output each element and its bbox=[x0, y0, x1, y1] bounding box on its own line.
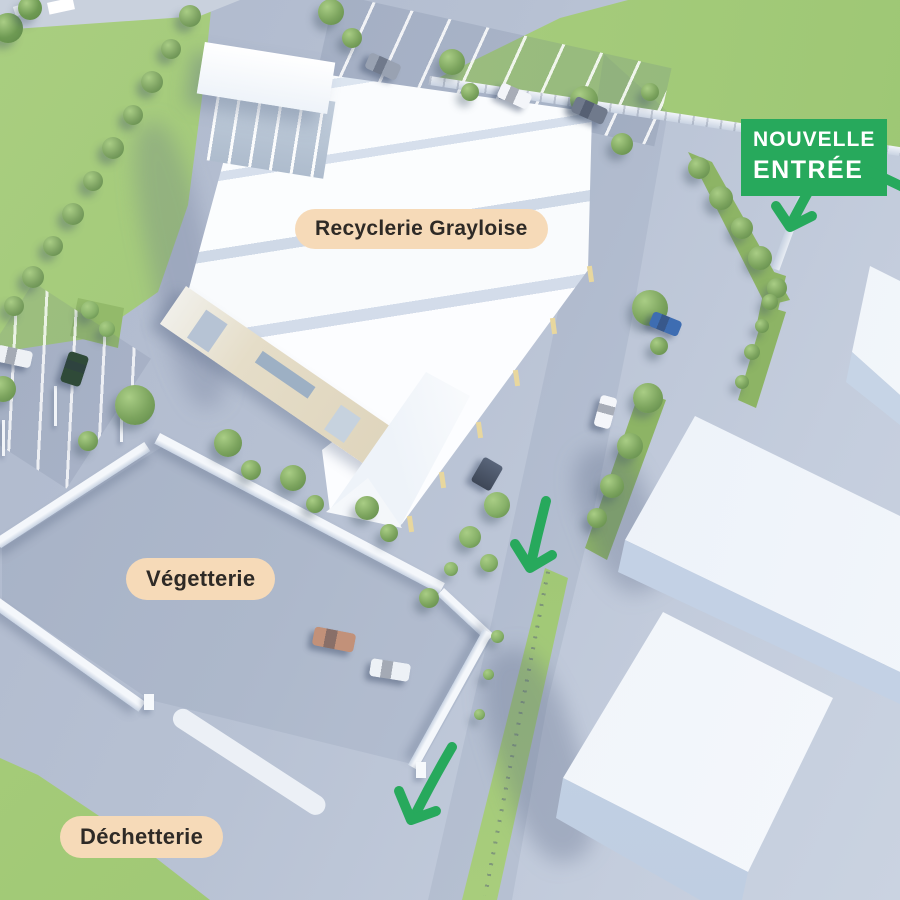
tree bbox=[755, 319, 769, 333]
tree bbox=[318, 0, 344, 25]
car bbox=[648, 311, 683, 337]
badge-line-2: ENTRÉE bbox=[753, 154, 875, 187]
tree bbox=[444, 562, 458, 576]
tree bbox=[214, 429, 242, 457]
loading-post bbox=[550, 318, 557, 335]
loading-post bbox=[476, 422, 483, 439]
tree bbox=[179, 5, 201, 27]
wall-endcap bbox=[144, 694, 154, 710]
tree bbox=[709, 186, 733, 210]
tree bbox=[762, 294, 778, 310]
tree bbox=[115, 385, 155, 425]
tree bbox=[62, 203, 84, 225]
tree bbox=[474, 709, 485, 720]
tree bbox=[611, 133, 633, 155]
tree bbox=[600, 474, 624, 498]
tree bbox=[280, 465, 306, 491]
tree bbox=[439, 49, 465, 75]
tree bbox=[43, 236, 63, 256]
loading-post bbox=[439, 472, 446, 489]
lamp-post bbox=[54, 386, 57, 426]
tree bbox=[102, 137, 124, 159]
tree bbox=[461, 83, 479, 101]
tree bbox=[419, 588, 439, 608]
label-vegetterie: Végetterie bbox=[126, 558, 275, 600]
tree bbox=[731, 217, 753, 239]
tree bbox=[141, 71, 163, 93]
badge-line-1: NOUVELLE bbox=[753, 126, 875, 154]
tree bbox=[641, 83, 659, 101]
label-dechetterie: Déchetterie bbox=[60, 816, 223, 858]
tree bbox=[81, 301, 99, 319]
tree bbox=[355, 496, 379, 520]
bottom-road-arrow-head bbox=[399, 791, 436, 820]
tree bbox=[241, 460, 261, 480]
facade-door bbox=[187, 310, 228, 353]
tree bbox=[380, 524, 398, 542]
site-plan-render: Recyclerie Grayloise Végetterie Déchette… bbox=[0, 0, 900, 900]
tree bbox=[161, 39, 181, 59]
tree bbox=[4, 296, 24, 316]
tree bbox=[306, 495, 324, 513]
nouvelle-entree-badge: NOUVELLE ENTRÉE bbox=[741, 119, 887, 196]
entrance-wall bbox=[772, 183, 810, 270]
dumpster bbox=[470, 456, 503, 491]
tree bbox=[748, 246, 772, 270]
tree bbox=[633, 383, 663, 413]
tree bbox=[491, 630, 504, 643]
tree bbox=[587, 508, 607, 528]
wall-endcap bbox=[416, 762, 426, 778]
tree bbox=[459, 526, 481, 548]
tree bbox=[342, 28, 362, 48]
tree bbox=[78, 431, 98, 451]
tree bbox=[480, 554, 498, 572]
tree bbox=[83, 171, 103, 191]
facade-door-2 bbox=[324, 405, 361, 443]
tree bbox=[484, 492, 510, 518]
tree bbox=[688, 157, 710, 179]
tree bbox=[123, 105, 143, 125]
tree bbox=[99, 321, 115, 337]
lamp-post bbox=[2, 420, 5, 456]
loading-post bbox=[513, 370, 520, 387]
tree bbox=[22, 266, 44, 288]
label-recyclerie: Recyclerie Grayloise bbox=[295, 209, 548, 249]
tree bbox=[617, 433, 643, 459]
tree bbox=[744, 344, 760, 360]
tree bbox=[735, 375, 749, 389]
tree bbox=[650, 337, 668, 355]
loading-post bbox=[407, 516, 414, 533]
tree bbox=[483, 669, 494, 680]
